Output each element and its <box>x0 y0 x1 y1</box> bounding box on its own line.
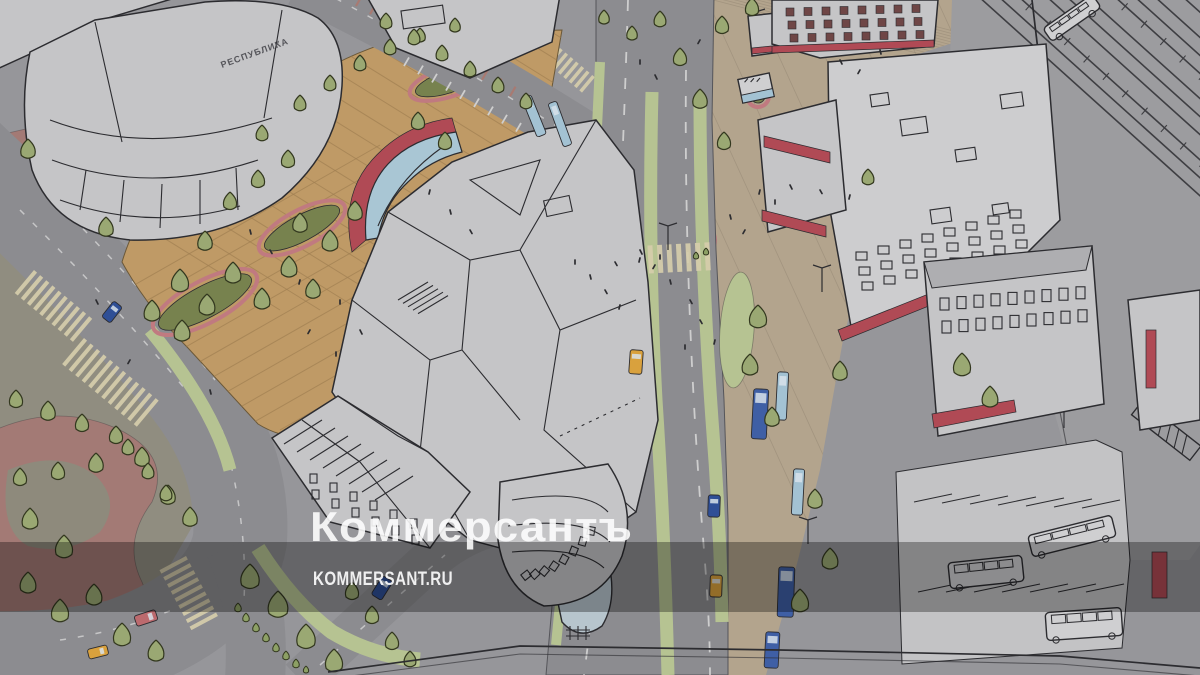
watermark-band <box>0 542 1200 612</box>
watermark-title: Коммерсантъ <box>310 503 633 550</box>
article-illustration: РЕСПУБЛИКА <box>0 0 1200 675</box>
historic-building <box>924 246 1104 436</box>
watermark-domain: KOMMERSANT.RU <box>313 569 453 590</box>
masterplan-drawing: РЕСПУБЛИКА <box>0 0 1200 675</box>
